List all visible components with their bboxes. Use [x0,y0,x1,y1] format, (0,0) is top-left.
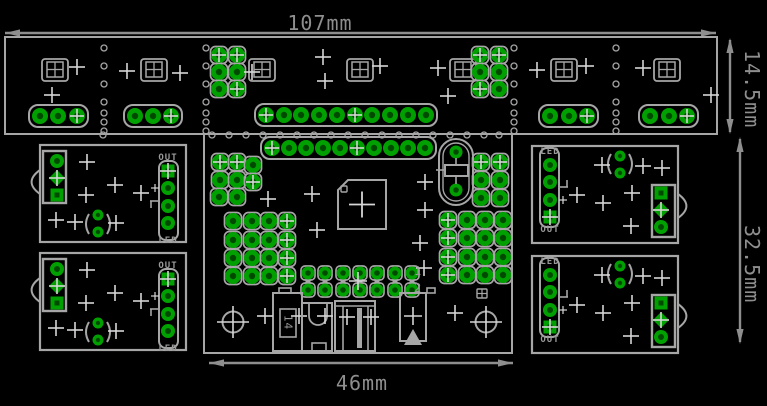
board-right-bottom-out-label: OUT [535,335,565,345]
smd-footprint [551,59,577,81]
pin-header-3 [124,105,182,127]
edge-notch [32,278,40,302]
led-outline [107,322,110,342]
pin-header-3 [539,105,598,127]
pin-header-10 [261,137,436,159]
pad-cluster [473,154,509,207]
pcb-canvas[interactable]: 107mm 14.5mm 32.5mm 46mm OUT LED OUT LED… [0,0,767,406]
board-right-top-out-label: OUT [535,225,565,235]
mouse-bite-hole [613,99,619,105]
mounting-hole [470,306,502,338]
board-left-top-out-label: OUT [153,153,183,163]
mouse-bite-hole [101,119,107,125]
pad-cluster [211,47,246,98]
pin-header-3 [29,105,88,127]
mouse-bite-hole [511,63,517,69]
mouse-bite-hole [203,110,209,116]
panel-rail [5,37,719,134]
board-right-top-led-label: LED [535,147,565,157]
component-14-label: 14 [282,315,295,331]
mouse-bite-hole [101,81,107,87]
crystal [436,139,473,205]
pad-cluster [440,212,512,284]
pad-cluster [472,47,508,98]
mouse-bite-hole [101,99,107,105]
mouse-bite-hole [511,110,517,116]
led-outline [86,322,89,342]
smd-footprint [347,59,373,81]
edge-notch [678,304,686,328]
mouse-bite-hole [203,81,209,87]
mouse-bite-hole [203,99,209,105]
smd-footprint [654,59,680,81]
led-outline [86,214,89,234]
led-outline [608,154,611,174]
dim-top-label: 107mm [287,11,353,35]
pad-cluster [225,213,296,285]
pin1-label: 1 [414,264,421,278]
mouse-bite-hole [511,45,517,51]
edge-notch [678,194,686,218]
led-outline [629,264,632,284]
led-outline [608,264,611,284]
board-left-top-led-label: LED [153,236,183,246]
mounting-hole [217,306,249,338]
smd-footprint [141,59,167,81]
pin2-label: 2 [414,281,421,295]
mouse-bite-hole [613,81,619,87]
smd-footprint [249,59,275,81]
qfp-chip [338,180,386,229]
pin-header-10 [255,104,437,126]
mouse-bite-hole [101,45,107,51]
led-outline [107,214,110,234]
edge-notch [32,170,40,194]
center-board [204,134,512,353]
mouse-bite-hole [613,45,619,51]
pad-cluster [211,154,262,206]
mouse-bite-hole [101,63,107,69]
component-u [302,303,333,351]
mouse-bite-hole [613,119,619,125]
mouse-bite-hole [511,81,517,87]
board-left-bottom-led-label: LED [153,344,183,354]
mouse-bite-hole [511,119,517,125]
board-right-bottom-led-label: LED [535,257,565,267]
dim-right-upper-label: 14.5mm [740,50,764,126]
mouse-bite-hole [613,110,619,116]
dim-bottom-label: 46mm [332,371,392,395]
led-outline [629,154,632,174]
pcb-drawing [0,0,767,406]
mouse-bite-hole [203,45,209,51]
mouse-bite-hole [101,110,107,116]
mouse-bite-hole [613,63,619,69]
mouse-bite-hole [203,63,209,69]
dim-right-lower-label: 32.5mm [740,225,764,301]
smd-footprint [42,59,68,81]
board-left-bottom-out-label: OUT [153,261,183,271]
power-jack [335,301,379,351]
mini-footprint [477,289,487,298]
pin-header-3 [639,105,698,127]
mouse-bite-hole [203,119,209,125]
mouse-bite-hole [511,99,517,105]
